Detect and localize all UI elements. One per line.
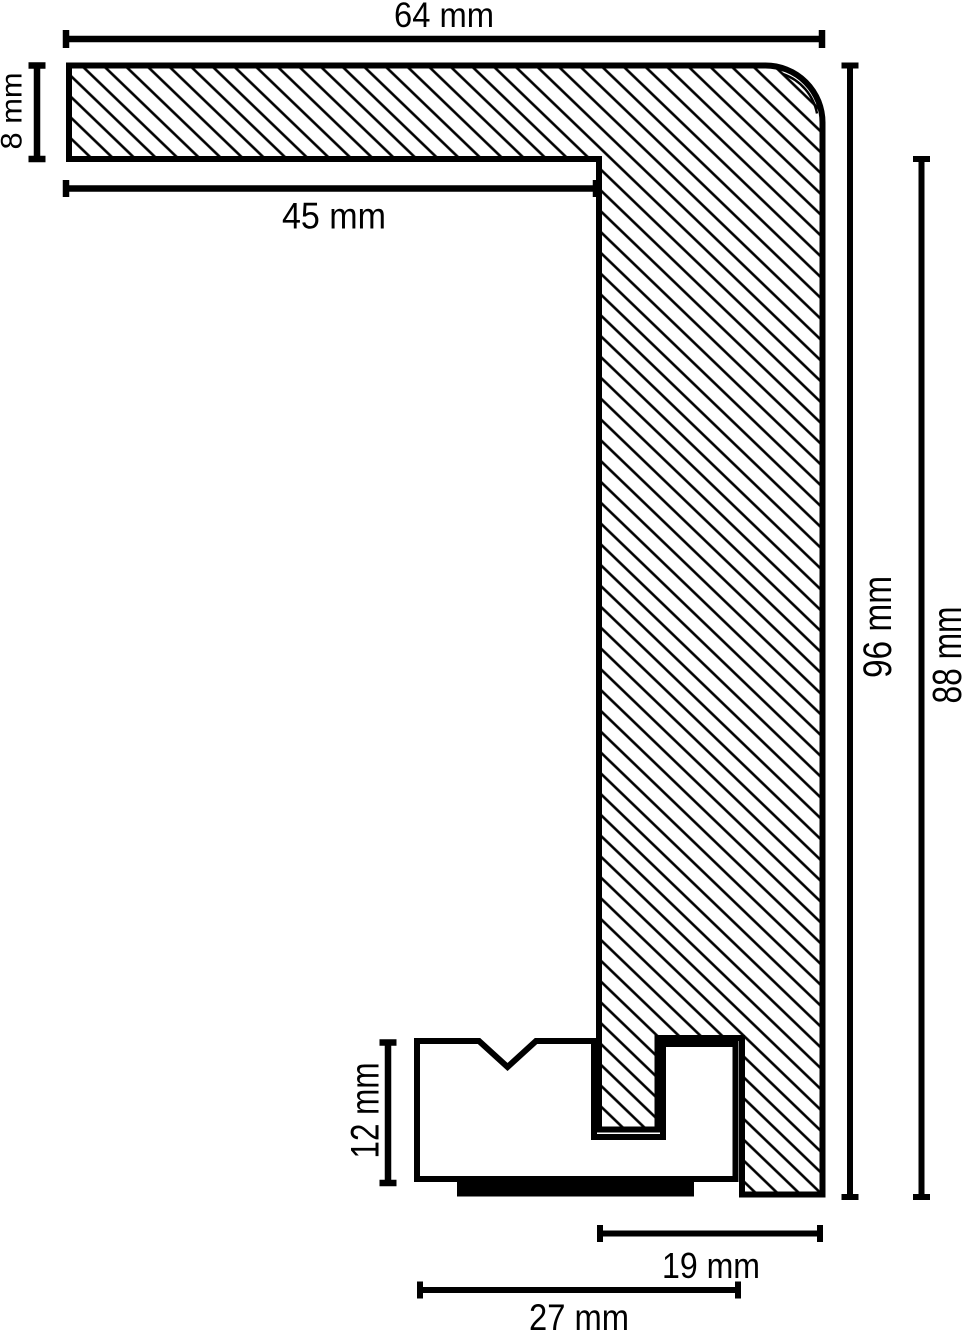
svg-text:19 mm: 19 mm xyxy=(662,1245,760,1286)
svg-text:96 mm: 96 mm xyxy=(856,576,900,678)
svg-text:88 mm: 88 mm xyxy=(924,607,962,704)
svg-text:12 mm: 12 mm xyxy=(344,1063,388,1159)
svg-text:45 mm: 45 mm xyxy=(282,196,386,237)
svg-text:64 mm: 64 mm xyxy=(394,0,494,35)
svg-text:27 mm: 27 mm xyxy=(529,1297,629,1332)
svg-text:8 mm: 8 mm xyxy=(0,73,29,150)
